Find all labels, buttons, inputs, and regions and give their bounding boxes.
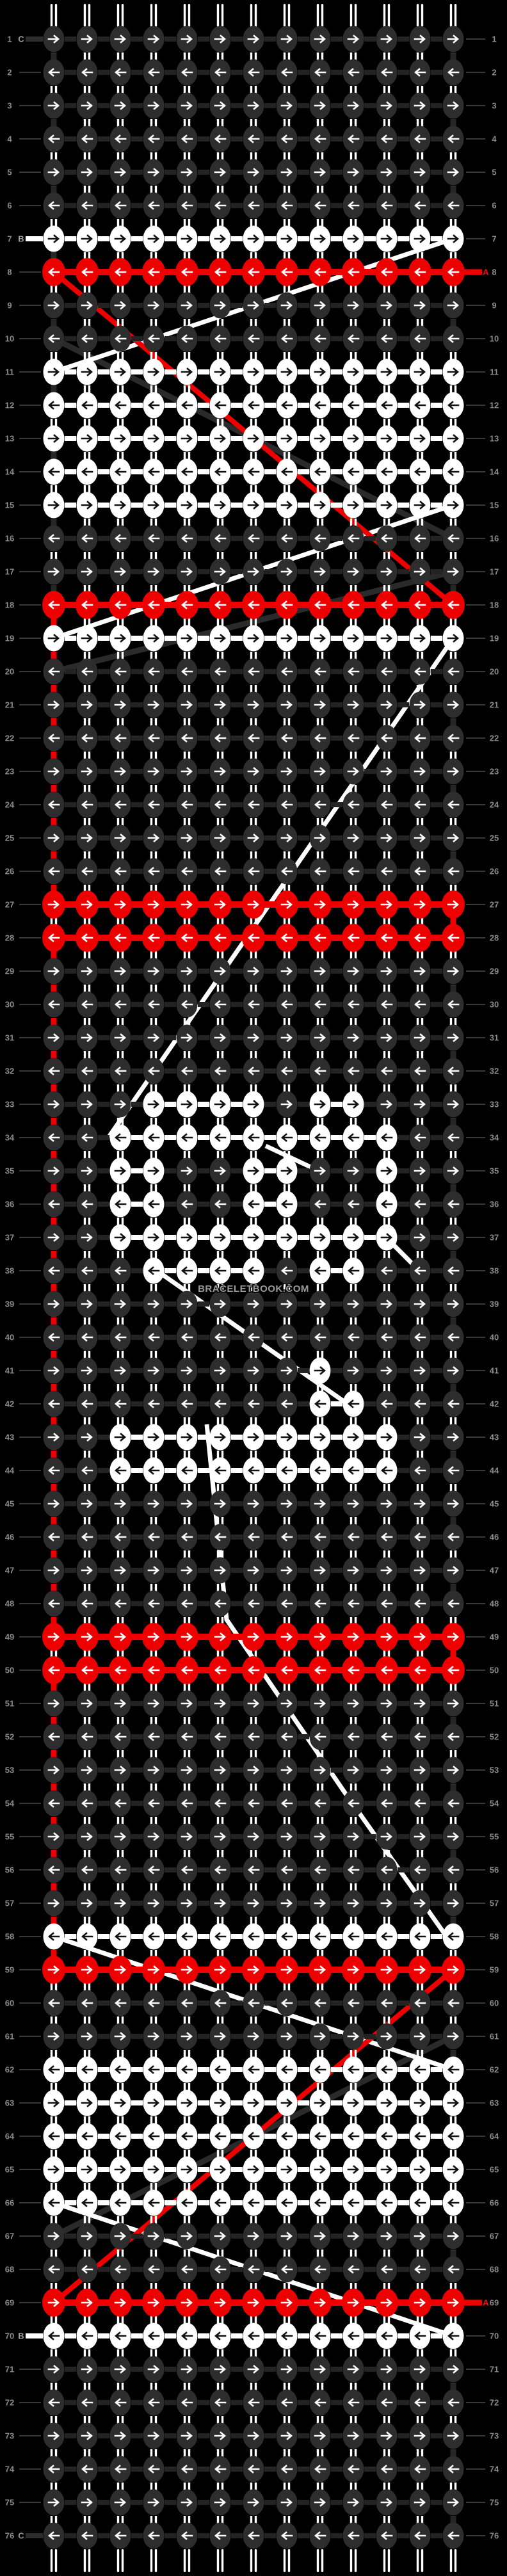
row-number-right: 12 — [490, 401, 499, 410]
knot-link — [264, 1468, 276, 1473]
knot-link — [298, 1035, 309, 1040]
knot-link — [331, 1102, 342, 1107]
knot-link — [298, 769, 309, 774]
knot-link — [364, 969, 376, 974]
knot-link — [131, 2267, 143, 2272]
knot-link — [298, 736, 309, 741]
row-number-left: 22 — [5, 734, 14, 743]
knot-link — [398, 835, 409, 841]
knot-link — [331, 2533, 342, 2538]
knot-link — [231, 1335, 243, 1340]
knot-link — [398, 1401, 409, 1406]
row-number-right: 1 — [492, 35, 496, 44]
knot-link — [131, 1102, 143, 1107]
knot-link — [165, 2500, 176, 2505]
knot-link — [98, 236, 109, 241]
knot-link — [431, 536, 442, 541]
knot-link — [264, 2000, 276, 2006]
knot-link — [364, 2333, 376, 2339]
knot-link — [198, 2333, 209, 2339]
knot-link — [231, 1734, 243, 1739]
knot-link — [165, 103, 176, 108]
knot-link — [65, 2500, 76, 2505]
knot-link — [131, 2533, 143, 2538]
knot-link — [331, 1701, 342, 1706]
string-letter-right: A — [483, 2298, 489, 2308]
knot-link — [198, 802, 209, 807]
knot-link — [264, 1068, 276, 1074]
row-number-left: 1 — [7, 35, 12, 44]
knot-link — [298, 1268, 309, 1273]
knot-link — [264, 702, 276, 707]
knot-link — [198, 1734, 209, 1739]
knot-link — [65, 2400, 76, 2405]
knot-link — [264, 1435, 276, 1440]
knot-link — [298, 36, 309, 42]
knot-link — [131, 1435, 143, 1440]
row-number-right: 2 — [492, 68, 496, 77]
knot-link — [131, 869, 143, 874]
knot-link — [131, 2200, 143, 2205]
knot-link — [331, 336, 342, 341]
knot-link — [65, 1468, 76, 1473]
knot-link — [398, 1534, 409, 1540]
knot-link — [131, 1867, 143, 1872]
knot-link — [131, 1268, 143, 1273]
knot-link — [98, 1967, 109, 1973]
knot-link — [131, 1634, 143, 1640]
knot-link — [331, 1534, 342, 1540]
row-number-left: 68 — [5, 2265, 14, 2274]
knot-link — [364, 1435, 376, 1440]
row-number-right: 21 — [490, 700, 499, 710]
knot-link — [331, 2299, 342, 2306]
knot-link — [431, 1634, 442, 1640]
knot-link — [364, 1901, 376, 1906]
knot-link — [198, 1834, 209, 1839]
row-number-left: 38 — [5, 1266, 14, 1276]
knot-link — [298, 2034, 309, 2039]
knot-link — [98, 2500, 109, 2505]
knot-link — [398, 702, 409, 707]
knot-link — [364, 1102, 376, 1107]
knot-link — [65, 669, 76, 674]
knot-link — [264, 1701, 276, 1706]
knot-link — [131, 2067, 143, 2072]
knot-link — [264, 36, 276, 42]
knot-link — [298, 636, 309, 641]
knot-link — [98, 1601, 109, 1606]
row-number-left: 11 — [5, 367, 14, 377]
knot-link — [98, 1468, 109, 1473]
string-letter-left: B — [18, 234, 24, 244]
knot-link — [65, 636, 76, 641]
knot-link — [98, 569, 109, 574]
knot-link — [264, 1401, 276, 1406]
knot-link — [264, 1301, 276, 1307]
knot-link — [264, 1734, 276, 1739]
knot-link — [398, 1202, 409, 1207]
knot-link — [131, 669, 143, 674]
knot-link — [231, 2467, 243, 2472]
row-number-left: 14 — [5, 467, 15, 477]
knot-link — [131, 70, 143, 75]
knot-link — [131, 1335, 143, 1340]
knot-link — [231, 2000, 243, 2006]
knot-link — [65, 170, 76, 175]
knot-link — [165, 1401, 176, 1406]
knot-link — [364, 1468, 376, 1473]
knot-link — [98, 1235, 109, 1240]
knot-link — [198, 602, 209, 608]
knot-link — [431, 869, 442, 874]
row-number-left: 69 — [5, 2298, 14, 2308]
knot-link — [165, 1202, 176, 1207]
knot-link — [298, 2400, 309, 2405]
knot-link — [331, 1335, 342, 1340]
knot-link — [231, 802, 243, 807]
knot-link — [298, 170, 309, 175]
pattern-row: 44 — [7, 126, 497, 152]
row-number-left: 26 — [5, 867, 14, 876]
knot-link — [364, 1035, 376, 1040]
string-end-stub-right — [464, 2300, 482, 2306]
knot-link — [431, 569, 442, 574]
watermark: BRACELETBOOK.COM — [198, 1284, 309, 1294]
knot-link — [431, 236, 442, 241]
knot-link — [298, 1368, 309, 1373]
knot-link — [98, 736, 109, 741]
row-number-right: 35 — [490, 1166, 499, 1176]
knot-link — [198, 303, 209, 308]
knot-link — [65, 70, 76, 75]
row-number-left: 56 — [5, 1865, 14, 1875]
row-number-right: 76 — [490, 2531, 499, 2541]
knot-link — [398, 1701, 409, 1706]
knot-link — [264, 1834, 276, 1839]
knot-link — [98, 1634, 109, 1640]
knot-link — [198, 1534, 209, 1540]
row-number-right: 22 — [490, 734, 499, 743]
knot-link — [398, 2067, 409, 2072]
knot-link — [264, 269, 276, 275]
knot-link — [431, 2299, 442, 2306]
knot-link — [65, 2200, 76, 2205]
knot-link — [231, 436, 243, 441]
knot-link — [431, 1967, 442, 1973]
knot-link — [364, 2299, 376, 2306]
row-number-right: 55 — [490, 1832, 499, 1842]
knot-link — [431, 1268, 442, 1273]
row-number-left: 72 — [5, 2398, 14, 2408]
knot-link — [131, 2500, 143, 2505]
knot-link — [431, 2500, 442, 2505]
knot-link — [231, 203, 243, 208]
knot-link — [331, 170, 342, 175]
knot-link — [264, 2500, 276, 2505]
knot-link — [431, 969, 442, 974]
knot-link — [298, 469, 309, 474]
knot-link — [398, 901, 409, 908]
knot-link — [364, 1967, 376, 1973]
knot-link — [198, 536, 209, 541]
knot-link — [298, 1235, 309, 1240]
knot-link — [131, 636, 143, 641]
knot-link — [264, 336, 276, 341]
row-number-right: 18 — [490, 600, 499, 610]
row-number-right: 17 — [490, 567, 499, 577]
row-number-right: 30 — [490, 1000, 499, 1010]
knot-link — [165, 1934, 176, 1939]
knot-link — [398, 1568, 409, 1573]
knot-link — [165, 1102, 176, 1107]
knot-link — [264, 1035, 276, 1040]
knot-link — [131, 569, 143, 574]
row-number-left: 44 — [5, 1466, 15, 1476]
knot-link — [165, 1068, 176, 1074]
knot-link — [364, 536, 376, 541]
knot-link — [231, 1202, 243, 1207]
knot-link — [364, 36, 376, 42]
row-number-right: 50 — [490, 1666, 499, 1675]
knot-link — [65, 1568, 76, 1573]
knot-link — [165, 1335, 176, 1340]
knot-link — [331, 2134, 342, 2139]
knot-link — [231, 2267, 243, 2272]
knot-link — [131, 1168, 143, 1173]
knot-link — [231, 935, 243, 941]
knot-link — [165, 336, 176, 341]
knot-link — [198, 1501, 209, 1506]
knot-link — [198, 336, 209, 341]
knot-link — [165, 1002, 176, 1007]
knot-link — [298, 1135, 309, 1140]
knot-link — [398, 2100, 409, 2105]
knot-link — [264, 369, 276, 374]
knot-link — [198, 1135, 209, 1140]
knot-link — [298, 103, 309, 108]
row-number-right: 29 — [490, 967, 499, 976]
knot-link — [231, 2333, 243, 2339]
row-number-left: 73 — [5, 2431, 14, 2441]
knot-link — [431, 1534, 442, 1540]
pattern-row: 69A69 — [5, 2289, 499, 2317]
knot-link — [364, 2034, 376, 2039]
knot-link — [231, 636, 243, 641]
knot-link — [198, 1202, 209, 1207]
knot-link — [231, 1667, 243, 1673]
row-number-right: 62 — [490, 2065, 499, 2075]
knot-link — [98, 602, 109, 608]
knot-link — [231, 1967, 243, 1973]
row-number-left: 52 — [5, 1732, 14, 1742]
knot-link — [165, 1767, 176, 1773]
knot-link — [398, 2000, 409, 2006]
knot-link — [264, 170, 276, 175]
pattern-row: 55 — [7, 159, 496, 186]
knot-link — [131, 1235, 143, 1240]
knot-link — [98, 2000, 109, 2006]
knot-link — [165, 1035, 176, 1040]
knot-link — [98, 2367, 109, 2372]
knot-link — [331, 1568, 342, 1573]
knot-link — [65, 969, 76, 974]
knot-link — [165, 1667, 176, 1673]
knot-link — [264, 1934, 276, 1939]
knot-link — [331, 1235, 342, 1240]
knot-link — [98, 1401, 109, 1406]
knot-link — [98, 2100, 109, 2105]
knot-link — [65, 2367, 76, 2372]
knot-link — [431, 2267, 442, 2272]
knot-link — [431, 1435, 442, 1440]
knot-link — [398, 2234, 409, 2239]
knot-link — [264, 1368, 276, 1373]
knot-link — [131, 1401, 143, 1406]
knot-link — [431, 2333, 442, 2339]
row-number-right: 27 — [490, 900, 499, 910]
knot-link — [65, 901, 76, 908]
knot-link — [298, 1168, 309, 1173]
knot-link — [165, 2400, 176, 2405]
knot-link — [198, 2500, 209, 2505]
knot-link — [165, 1168, 176, 1173]
pattern-row: 22 — [7, 60, 496, 86]
knot-link — [98, 2234, 109, 2239]
knot-link — [431, 702, 442, 707]
knot-link — [65, 802, 76, 807]
knot-link — [364, 669, 376, 674]
knot-link — [98, 1934, 109, 1939]
knot-link — [398, 70, 409, 75]
knot-link — [298, 1801, 309, 1806]
knot-link — [131, 2167, 143, 2172]
knot-link — [198, 2067, 209, 2072]
knot-link — [165, 1568, 176, 1573]
knot-link — [431, 1102, 442, 1107]
knot-link — [331, 1435, 342, 1440]
pattern-row: 2727 — [5, 890, 499, 919]
knot-link — [165, 1801, 176, 1806]
knot-link — [98, 2333, 109, 2339]
knot-link — [65, 2100, 76, 2105]
knot-link — [331, 1801, 342, 1806]
knot-link — [231, 2234, 243, 2239]
knot-link — [98, 303, 109, 308]
knot-link — [364, 2367, 376, 2372]
knot-link — [264, 536, 276, 541]
knot-link — [198, 70, 209, 75]
row-number-left: 41 — [5, 1366, 14, 1376]
knot-link — [431, 170, 442, 175]
knot-link — [131, 1667, 143, 1673]
knot-link — [364, 1801, 376, 1806]
knot-link — [398, 103, 409, 108]
knot-link — [198, 636, 209, 641]
knot-link — [131, 1135, 143, 1140]
knot-link — [264, 1335, 276, 1340]
knot-link — [165, 170, 176, 175]
knot-link — [331, 103, 342, 108]
knot-link — [264, 2267, 276, 2272]
knot-link — [165, 2067, 176, 2072]
knot-link — [165, 536, 176, 541]
row-number-left: 33 — [5, 1100, 14, 1109]
knot-link — [198, 1767, 209, 1773]
knot-link — [364, 403, 376, 408]
knot-link — [298, 901, 309, 908]
knot-link — [231, 1534, 243, 1540]
knot-link — [198, 1035, 209, 1040]
knot-link — [65, 1934, 76, 1939]
row-number-left: 13 — [5, 434, 14, 444]
knot-link — [298, 2467, 309, 2472]
knot-link — [431, 469, 442, 474]
row-number-right: 40 — [490, 1333, 499, 1342]
knot-link — [331, 2400, 342, 2405]
knot-link — [264, 2100, 276, 2105]
knot-link — [331, 1767, 342, 1773]
knot-link — [364, 569, 376, 574]
knot-link — [264, 736, 276, 741]
knot-link — [131, 802, 143, 807]
row-number-right: 49 — [490, 1632, 499, 1642]
knot-link — [331, 1901, 342, 1906]
knot-link — [98, 403, 109, 408]
knot-link — [198, 469, 209, 474]
knot-link — [364, 1501, 376, 1506]
knot-link — [165, 503, 176, 508]
knot-link — [331, 869, 342, 874]
row-number-right: 5 — [492, 168, 496, 177]
knot-link — [398, 935, 409, 941]
knot-link — [264, 1601, 276, 1606]
knot-link — [165, 969, 176, 974]
knot-link — [331, 1867, 342, 1872]
row-number-right: 67 — [490, 2232, 499, 2241]
string-end-stub-left — [26, 2533, 43, 2538]
row-number-right: 44 — [490, 1466, 499, 1476]
knot-link — [431, 70, 442, 75]
knot-link — [65, 103, 76, 108]
knot-link — [131, 336, 143, 341]
row-number-left: 29 — [5, 967, 14, 976]
knot-link — [331, 636, 342, 641]
knot-link — [264, 1767, 276, 1773]
knot-link — [331, 2433, 342, 2438]
row-number-left: 39 — [5, 1300, 14, 1309]
knot-link — [131, 2400, 143, 2405]
pattern-row: 8A8 — [7, 258, 496, 286]
knot-link — [298, 569, 309, 574]
knot-link — [165, 1734, 176, 1739]
knot-link — [231, 569, 243, 574]
knot-link — [431, 2100, 442, 2105]
knot-link — [98, 769, 109, 774]
knot-link — [231, 2167, 243, 2172]
knot-link — [331, 1934, 342, 1939]
string-letter-left: C — [18, 2531, 24, 2541]
row-number-right: 58 — [490, 1932, 499, 1942]
knot-link — [231, 1135, 243, 1140]
knot-link — [431, 2433, 442, 2438]
knot-link — [331, 1068, 342, 1074]
knot-link — [331, 1634, 342, 1640]
knot-link — [65, 303, 76, 308]
knot-link — [131, 769, 143, 774]
knot-link — [165, 736, 176, 741]
knot-link — [331, 901, 342, 908]
